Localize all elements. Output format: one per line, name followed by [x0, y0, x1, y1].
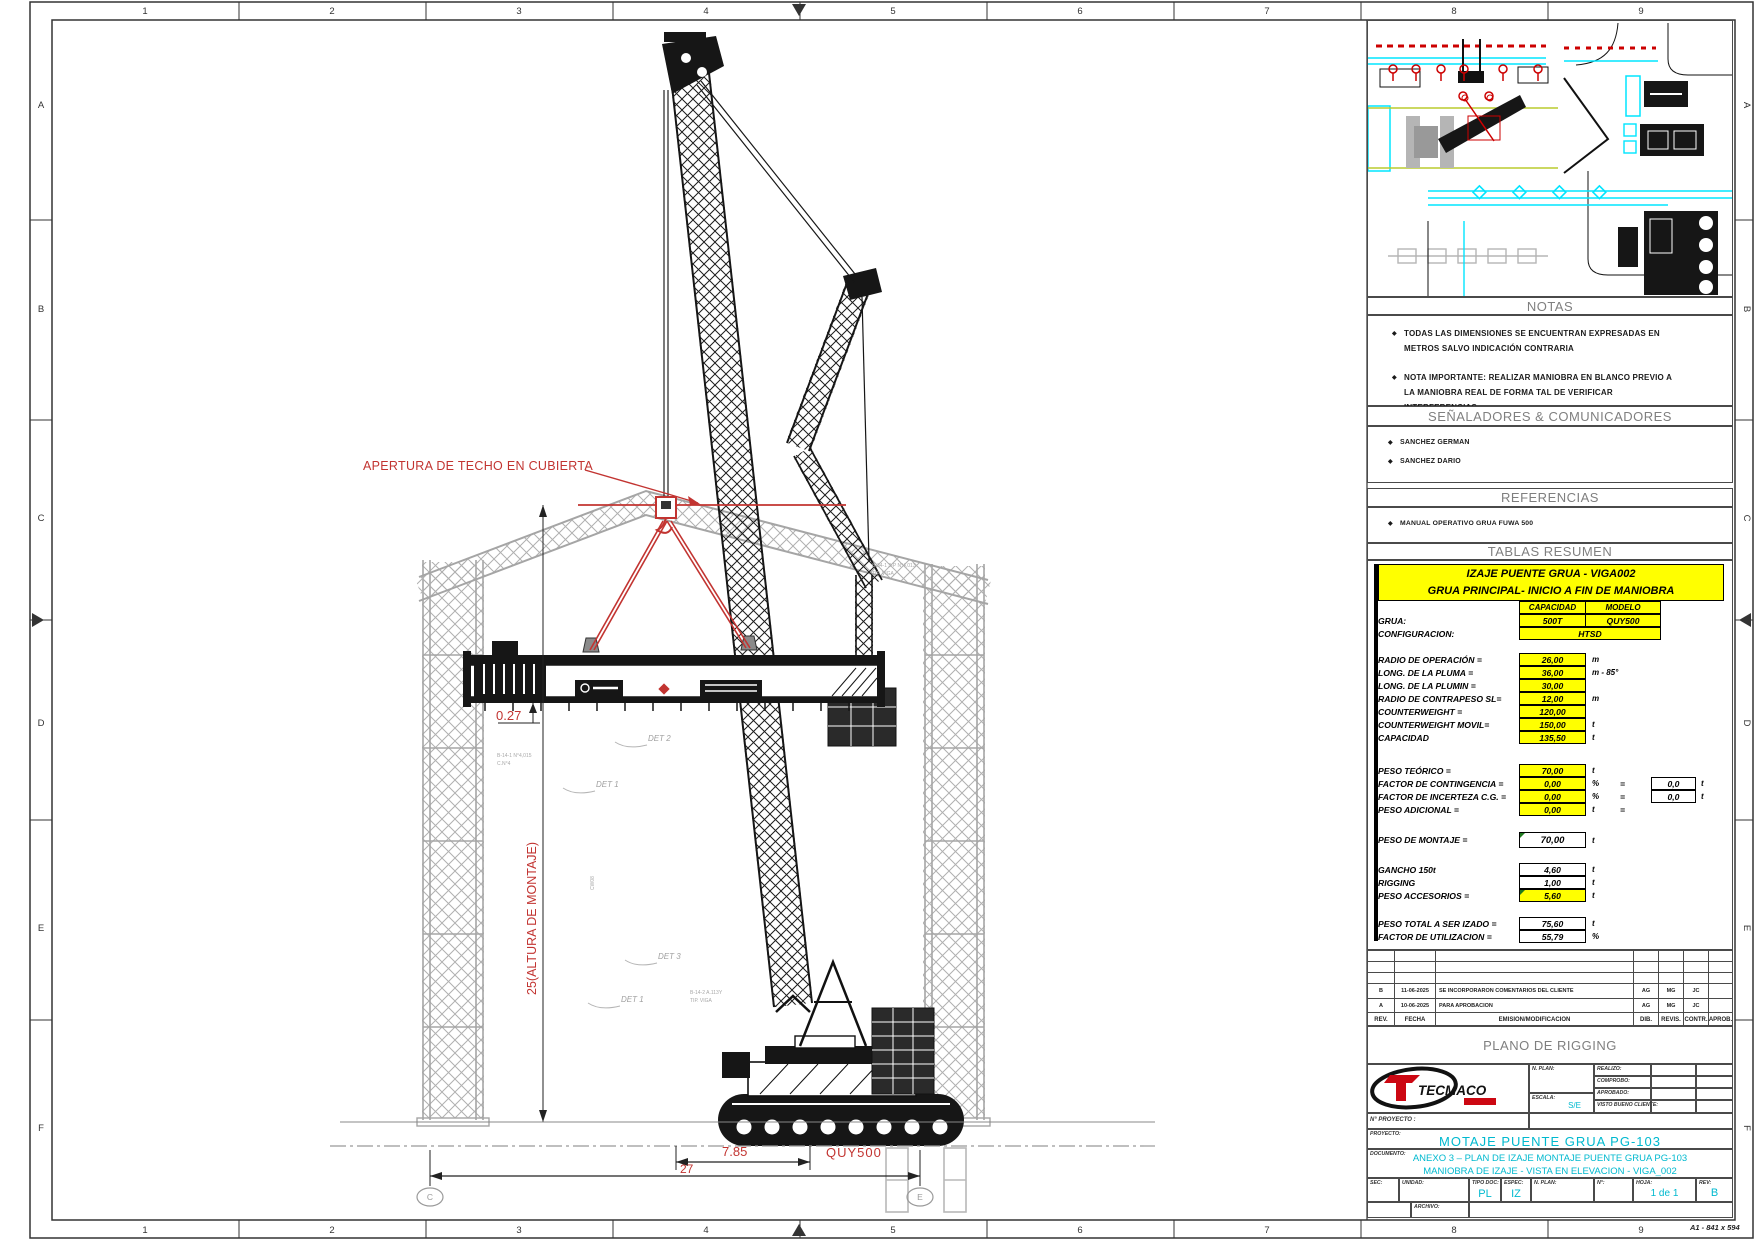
rigging-red: [578, 470, 846, 650]
revision-empty-row: [1368, 962, 1732, 973]
lifted-beam: [463, 636, 885, 711]
detail-label: DET 1: [596, 780, 619, 789]
rev-value: B: [1697, 1187, 1732, 1199]
grid-row: A: [38, 100, 45, 111]
tablas-title: TABLAS RESUMEN: [1488, 544, 1613, 559]
logo-cell: TECMACO: [1368, 1064, 1529, 1113]
referencias-header: REFERENCIAS: [1367, 488, 1733, 507]
rev-revis: MG: [1659, 984, 1684, 998]
bullet-icon: ◆: [1388, 517, 1393, 532]
senaladores-header: SEÑALADORES & COMUNICADORES: [1367, 406, 1733, 426]
grua-capacidad: 500T: [1519, 614, 1586, 627]
grid-row: C: [1741, 515, 1752, 522]
rev-cell: REV: B: [1696, 1178, 1732, 1202]
micro-note: TIP. VIGA: [690, 998, 713, 1004]
grid-col: 6: [1077, 6, 1082, 17]
value-cell: 55,79: [1519, 930, 1586, 943]
result-cell: 0,0: [1651, 777, 1696, 790]
senalador-name: SANCHEZ DARIO: [1400, 458, 1461, 465]
grid-bubble-left: C: [427, 1192, 433, 1202]
value-cell: 30,00: [1519, 679, 1586, 692]
table-row: PESO ADICIONAL = 0,00 t =: [1368, 803, 1732, 816]
notas-title: NOTAS: [1527, 299, 1573, 314]
detail-label: DET 1: [621, 995, 644, 1004]
plan-pipes: [1428, 186, 1732, 205]
crawler-base: [718, 1094, 964, 1146]
rev-dib: AG: [1634, 984, 1659, 998]
logo-t-mark: [1384, 1075, 1420, 1101]
grid-col: 7: [1264, 6, 1269, 17]
hoja-cell: HOJA: 1 de 1: [1633, 1178, 1696, 1202]
realizo-cell: REALIZO:: [1594, 1064, 1651, 1076]
col-modelo: MODELO: [1586, 601, 1661, 614]
derrick-tip: [843, 268, 882, 300]
value-cell: 70,00: [1519, 764, 1586, 777]
height-dim-label: 25(ALTURA DE MONTAJE): [525, 842, 539, 995]
documento-cell: DOCUMENTO: ANEXO 3 – PLAN DE IZAJE MONTA…: [1368, 1149, 1732, 1178]
dim-27-label: 27: [680, 1162, 694, 1176]
value-cell: 4,60: [1519, 863, 1586, 876]
grid-row: E: [38, 923, 44, 934]
plan-ghost-beams: [1388, 249, 1548, 263]
unidad-cell: UNIDAD:: [1399, 1178, 1469, 1202]
dim-027-label: 0.27: [496, 708, 521, 723]
value-cell: 1,00: [1519, 876, 1586, 889]
rev-desc: PARA APROBACION: [1436, 999, 1634, 1012]
rev-revis: MG: [1659, 999, 1684, 1012]
drawing-title: PLANO DE RIGGING: [1483, 1038, 1617, 1053]
beam-stiffeners: [485, 703, 849, 711]
revision-empty-row: [1368, 973, 1732, 984]
grid-col: 8: [1451, 1225, 1456, 1236]
revision-table: B 11-06-2025 SE INCORPORARON COMENTARIOS…: [1367, 950, 1733, 1026]
micro-note: B-34-1 3-P N°4,013: [872, 563, 916, 569]
table-row: LONG. DE LA PLUMIN = 30,00: [1368, 679, 1732, 692]
grid-col: 2: [329, 6, 334, 17]
value-cell: 70,00: [1519, 832, 1586, 848]
referencias-body: ◆ MANUAL OPERATIVO GRUA FUWA 500: [1367, 507, 1733, 543]
revision-header-row: REV. FECHA EMISION/MODIFICACION DIB. REV…: [1368, 1013, 1732, 1026]
bullet-icon: ◆: [1388, 436, 1393, 451]
rev-date: 11-06-2025: [1395, 984, 1436, 998]
value-cell: 0,00: [1519, 790, 1586, 803]
nproyecto-cell: N° PROYECTO :: [1368, 1113, 1529, 1129]
senaladores-title: SEÑALADORES & COMUNICADORES: [1428, 409, 1672, 424]
value-cell: 0,00: [1519, 803, 1586, 816]
value-cell: 135,50: [1519, 731, 1586, 744]
revision-empty-row: [1368, 951, 1732, 962]
grid-col: 3: [516, 6, 521, 17]
escala-value: S/E: [1568, 1101, 1581, 1110]
value-cell: 12,00: [1519, 692, 1586, 705]
espec-cell: ESPEC: IZ: [1501, 1178, 1531, 1202]
n-cell: N°:: [1594, 1178, 1633, 1202]
rev-letter: A: [1368, 999, 1395, 1012]
table-title-2: GRUA PRINCIPAL- INICIO A FIN DE MANIOBRA: [1378, 582, 1724, 601]
table-row: RADIO DE OPERACIÓN = 26,00 m: [1368, 653, 1732, 666]
senaladores-body: ◆ SANCHEZ GERMAN ◆ SANCHEZ DARIO: [1367, 426, 1733, 483]
value-cell: 150,00: [1519, 718, 1586, 731]
grid-col: 2: [329, 1225, 334, 1236]
value-cell: 0,00: [1519, 777, 1586, 790]
site-plan: [1367, 20, 1733, 297]
crane-model-label: QUY500: [826, 1145, 882, 1160]
notas-body: ◆ TODAS LAS DIMENSIONES SE ENCUENTRAN EX…: [1367, 315, 1733, 406]
drawing-sheet: 1 2 3 4 5 6 7 8 9 1 2 3 4 5 6 7 8 9: [0, 0, 1755, 1240]
senalador-item: ◆ SANCHEZ GERMAN: [1386, 435, 1668, 450]
grid-col: 1: [142, 1225, 147, 1236]
hoja-value: 1 de 1: [1634, 1188, 1695, 1199]
superstructure: [722, 962, 934, 1096]
table-row: PESO TEÓRICO = 70,00 t: [1368, 764, 1732, 777]
grid-row: E: [1741, 925, 1752, 931]
crawler-crane: [662, 32, 964, 1146]
proyecto-cell: PROYECTO: MOTAJE PUENTE GRUA PG-103: [1368, 1129, 1732, 1149]
plan-equipment-br: [1618, 211, 1718, 295]
grid-col: 9: [1638, 6, 1643, 17]
rev-contr: JC: [1684, 999, 1709, 1012]
rev-aprob: [1709, 984, 1732, 998]
senalador-item: ◆ SANCHEZ DARIO: [1386, 454, 1668, 469]
grid-row: B: [38, 304, 44, 315]
table-row-grua: GRUA: 500T QUY500: [1368, 614, 1732, 627]
bullet-icon: ◆: [1392, 371, 1397, 386]
table-title-1: IZAJE PUENTE GRUA - VIGA002: [1378, 564, 1724, 584]
table-row-configuracion: CONFIGURACION: HTSD: [1368, 627, 1732, 640]
micro-note: C.N°4: [497, 761, 511, 767]
grid-row: D: [38, 718, 45, 729]
tablas-header: TABLAS RESUMEN: [1367, 543, 1733, 560]
note-item: ◆ TODAS LAS DIMENSIONES SE ENCUENTRAN EX…: [1390, 326, 1672, 356]
grid-row: C: [38, 513, 45, 524]
roof-opening-label: APERTURA DE TECHO EN CUBIERTA: [363, 459, 593, 473]
nplan2-cell: N. PLAN:: [1531, 1178, 1594, 1202]
micro-note: CW08: [590, 876, 596, 890]
table-colhead-row: CAPACIDAD MODELO: [1368, 601, 1732, 614]
grid-col: 6: [1077, 1225, 1082, 1236]
bullet-icon: ◆: [1392, 327, 1397, 342]
documento-line1: ANEXO 3 – PLAN DE IZAJE MONTAJE PUENTE G…: [1368, 1153, 1732, 1164]
detail-label: DET 2: [648, 734, 671, 743]
grid-numbers-top: 1 2 3 4 5 6 7 8 9: [142, 6, 1643, 17]
grid-col: 4: [703, 6, 708, 17]
grid-col: 5: [890, 1225, 895, 1236]
grid-row: B: [1741, 306, 1752, 312]
grid-col: 1: [142, 6, 147, 17]
referencia-text: MANUAL OPERATIVO GRUA FUWA 500: [1400, 520, 1533, 527]
referencias-title: REFERENCIAS: [1501, 490, 1599, 505]
proyecto-value: MOTAJE PUENTE GRUA PG-103: [1368, 1134, 1732, 1149]
visto-cell: VISTO BUENO CLIENTE:: [1594, 1100, 1651, 1113]
micro-notes: B-14-1 N°4,015 C.N°4 B-34-1 3-P N°4,013 …: [497, 563, 916, 1004]
micro-note: TIP. VIGA: [872, 571, 895, 577]
rev-date: 10-06-2025: [1395, 999, 1436, 1012]
site-plan-graphic: [1368, 21, 1732, 296]
detail-label: DET 3: [658, 952, 681, 961]
value-cell: 75,60: [1519, 917, 1586, 930]
espec-value: IZ: [1502, 1188, 1530, 1200]
value-cell: 36,00: [1519, 666, 1586, 679]
referencia-item: ◆ MANUAL OPERATIVO GRUA FUWA 500: [1386, 516, 1668, 531]
rev-contr: JC: [1684, 984, 1709, 998]
grid-row: F: [1741, 1125, 1752, 1131]
grid-col: 9: [1638, 1225, 1643, 1236]
table-row: RIGGING 1,00 t: [1368, 876, 1732, 889]
dim-785-label: 7.85: [722, 1144, 747, 1159]
plan-crane: [1406, 95, 1526, 168]
grid-col: 4: [703, 1225, 708, 1236]
grid-col: 5: [890, 6, 895, 17]
grid-row: F: [38, 1123, 44, 1134]
aprobado-cell: APROBADO:: [1594, 1088, 1651, 1100]
table-row: PESO ACCESORIOS = 5,60 t: [1368, 889, 1732, 902]
documento-line2: MANIOBRA DE IZAJE - VISTA EN ELEVACION -…: [1368, 1166, 1732, 1177]
table-row-montaje: PESO DE MONTAJE = 70,00 t: [1368, 832, 1732, 848]
table-row: FACTOR DE CONTINGENCIA = 0,00 % = 0,0 t: [1368, 777, 1732, 790]
grid-row: D: [1741, 720, 1752, 727]
micro-note: B-14-2 A.113Y: [690, 990, 723, 996]
value-cell: 5,60: [1519, 889, 1586, 902]
note-text: TODAS LAS DIMENSIONES SE ENCUENTRAN EXPR…: [1404, 329, 1660, 353]
bullet-icon: ◆: [1388, 455, 1393, 470]
nplan-cell: N. PLAN:: [1529, 1064, 1594, 1093]
notas-header: NOTAS: [1367, 297, 1733, 315]
detail-labels: DET 2 DET 1 DET 3 DET 1: [563, 734, 681, 1008]
grid-bubble-right: E: [917, 1192, 923, 1202]
result-cell: 0,0: [1651, 790, 1696, 803]
drawing-title-band: PLANO DE RIGGING: [1368, 1027, 1732, 1064]
revision-row: B 11-06-2025 SE INCORPORARON COMENTARIOS…: [1368, 984, 1732, 999]
rev-dib: AG: [1634, 999, 1659, 1012]
grid-row: A: [1741, 102, 1752, 109]
table-row: COUNTERWEIGHT MOVIL= 150,00 t: [1368, 718, 1732, 731]
grid-col: 7: [1264, 1225, 1269, 1236]
senalador-name: SANCHEZ GERMAN: [1400, 439, 1470, 446]
beam-trolley: [474, 641, 546, 697]
grid-col: 3: [516, 1225, 521, 1236]
revision-row: A 10-06-2025 PARA APROBACION AG MG JC: [1368, 999, 1732, 1013]
rev-letter: B: [1368, 984, 1395, 998]
table-row: LONG. DE LA PLUMA = 36,00 m - 85°: [1368, 666, 1732, 679]
col-capacidad: CAPACIDAD: [1519, 601, 1586, 614]
grid-col: 8: [1451, 6, 1456, 17]
tipodoc-value: PL: [1470, 1188, 1500, 1200]
table-row: PESO TOTAL A SER IZADO = 75,60 t: [1368, 917, 1732, 930]
tipodoc-cell: TIPO DOC: PL: [1469, 1178, 1501, 1202]
table-row: COUNTERWEIGHT = 120,00: [1368, 705, 1732, 718]
rev-desc: SE INCORPORARON COMENTARIOS DEL CLIENTE: [1436, 984, 1634, 998]
table-row: GANCHO 150t 4,60 t: [1368, 863, 1732, 876]
summary-table: IZAJE PUENTE GRUA - VIGA002 GRUA PRINCIP…: [1367, 560, 1733, 950]
sec-cell: SEC:: [1368, 1178, 1399, 1202]
value-cell: 26,00: [1519, 653, 1586, 666]
micro-note: B-14-1 N°4,015: [497, 753, 532, 759]
sheet-format-label: A1 - 841 x 594: [1689, 1223, 1740, 1232]
value-cell: 120,00: [1519, 705, 1586, 718]
archivo-cell: ARCHIVO:: [1411, 1202, 1469, 1217]
logo-text: TECMACO: [1418, 1083, 1487, 1098]
table-row: CAPACIDAD 135,50 t: [1368, 731, 1732, 744]
title-block: PLANO DE RIGGING TECMACO N. PLAN: ESCALA…: [1367, 1026, 1733, 1218]
table-row: RADIO DE CONTRAPESO SL= 12,00 m: [1368, 692, 1732, 705]
grua-modelo: QUY500: [1586, 614, 1661, 627]
grid-numbers-bottom: 1 2 3 4 5 6 7 8 9: [142, 1225, 1643, 1236]
comprobo-cell: COMPROBO:: [1594, 1076, 1651, 1088]
rev-aprob: [1709, 999, 1732, 1012]
table-row: FACTOR DE UTILIZACION = 55,79 %: [1368, 930, 1732, 943]
tecmaco-logo: TECMACO: [1368, 1065, 1527, 1112]
escala-cell: ESCALA: S/E: [1529, 1093, 1594, 1113]
configuracion-value: HTSD: [1519, 627, 1661, 640]
table-row: FACTOR DE INCERTEZA C.G. = 0,00 % = 0,0 …: [1368, 790, 1732, 803]
